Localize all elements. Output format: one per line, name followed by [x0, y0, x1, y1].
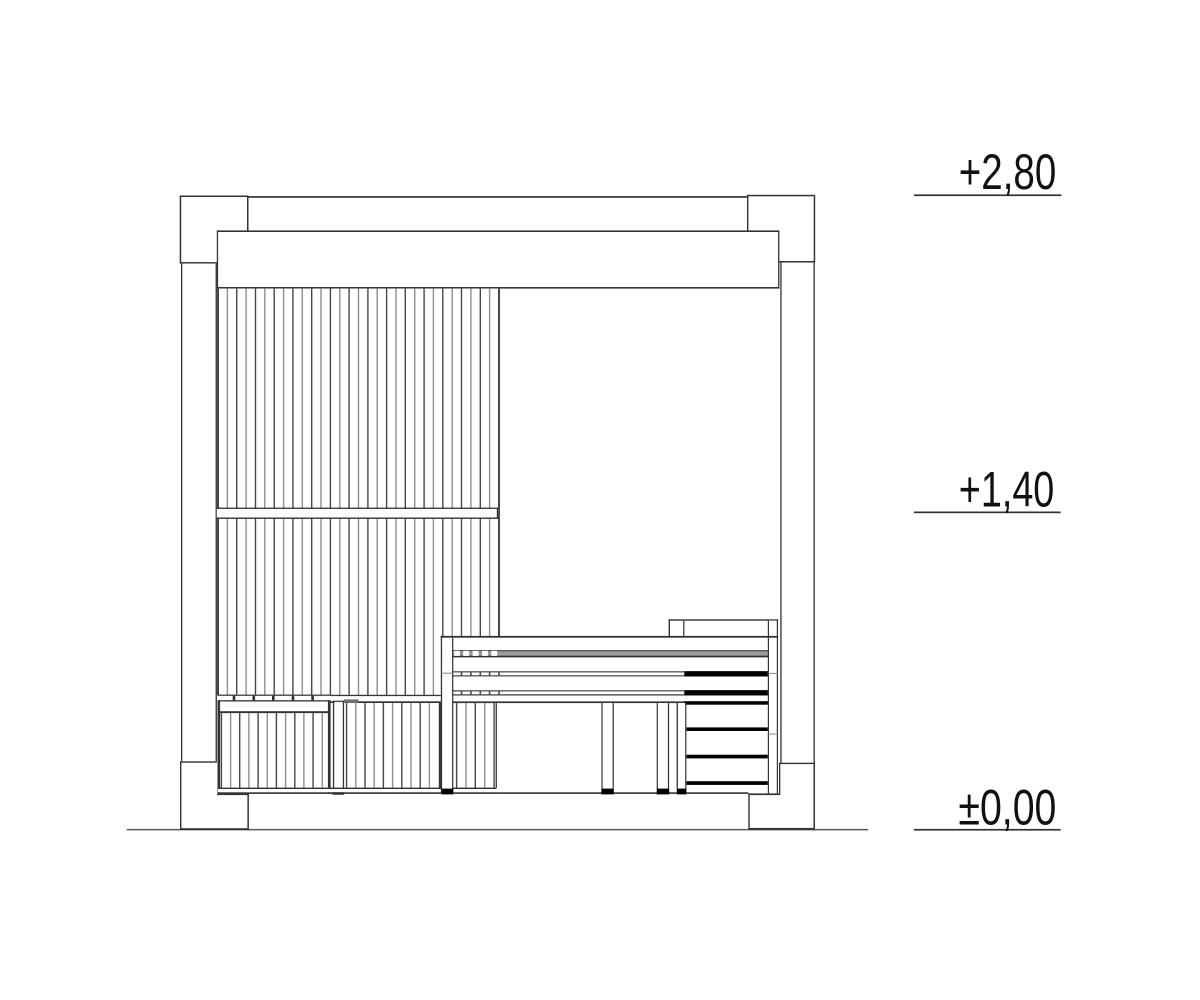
svg-text:±0,00: ±0,00: [958, 780, 1056, 836]
svg-text:+1,40: +1,40: [959, 462, 1055, 518]
svg-text:+2,80: +2,80: [959, 144, 1057, 200]
